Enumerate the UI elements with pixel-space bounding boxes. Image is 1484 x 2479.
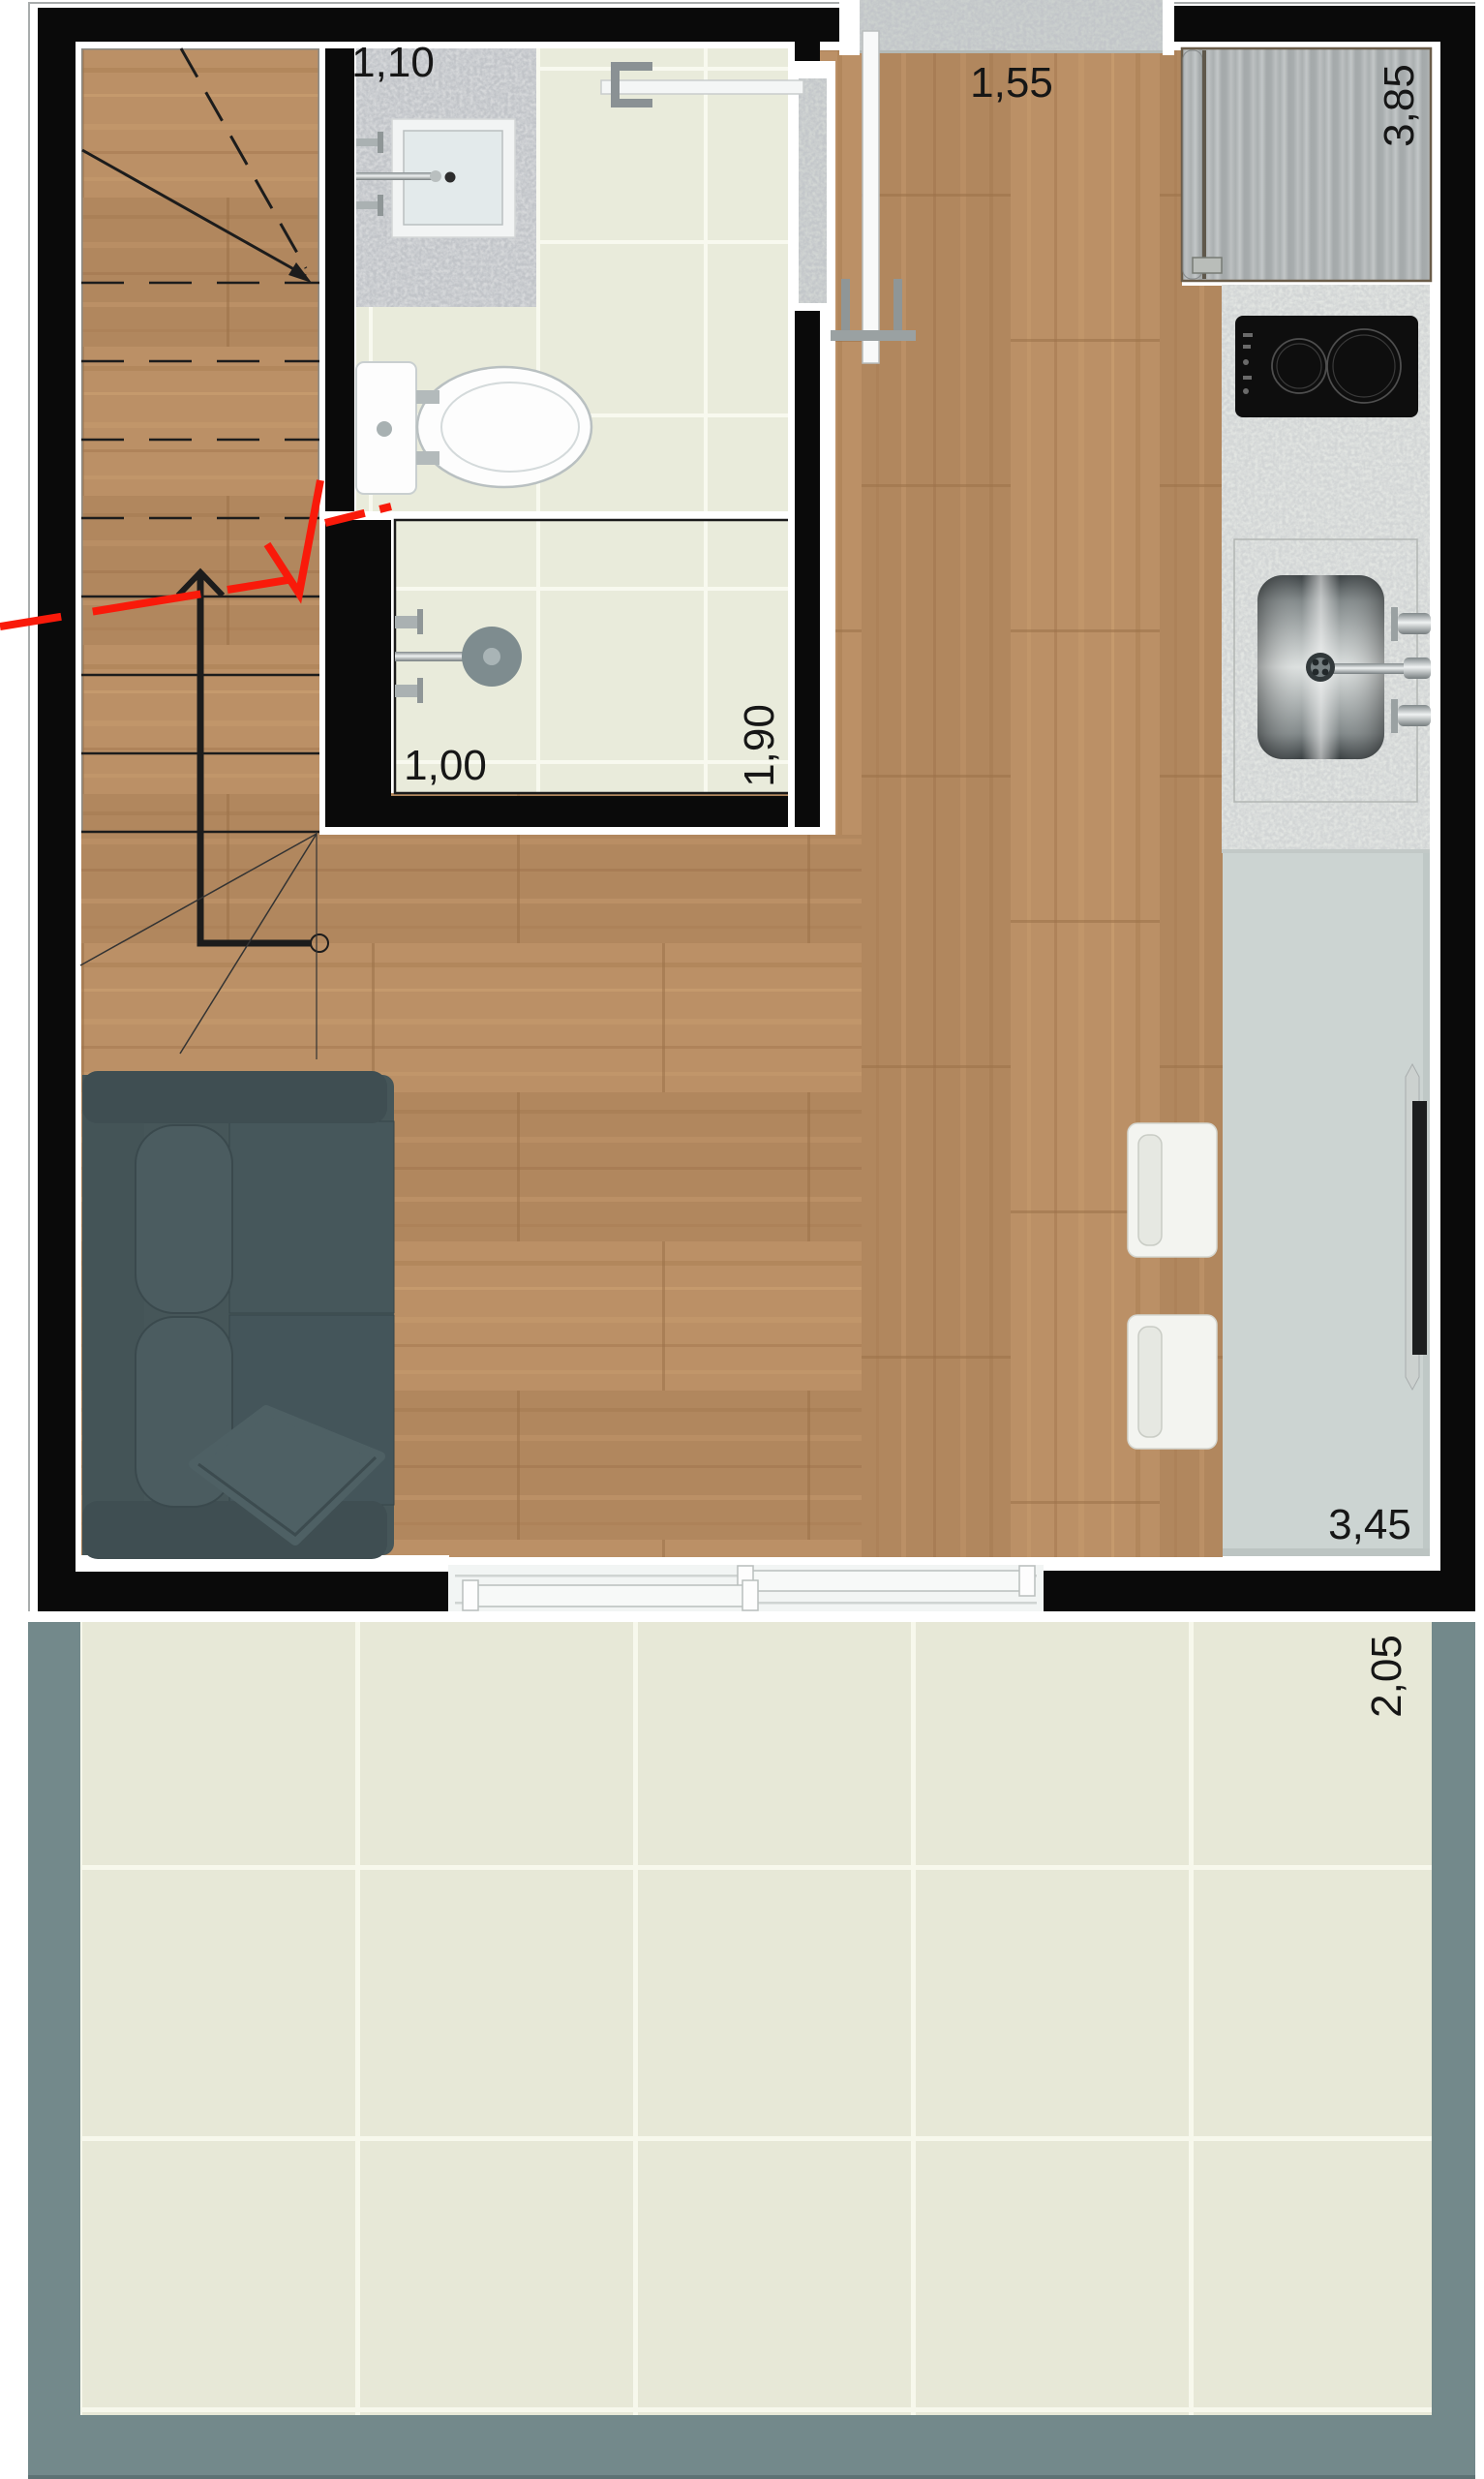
svg-text:2,05: 2,05 <box>1363 1635 1410 1718</box>
svg-text:1,00: 1,00 <box>404 742 487 789</box>
svg-text:1,90: 1,90 <box>736 704 783 787</box>
svg-text:3,45: 3,45 <box>1328 1501 1411 1548</box>
svg-text:1,10: 1,10 <box>351 39 435 86</box>
svg-text:3,85: 3,85 <box>1376 64 1423 147</box>
svg-text:1,55: 1,55 <box>970 59 1053 107</box>
